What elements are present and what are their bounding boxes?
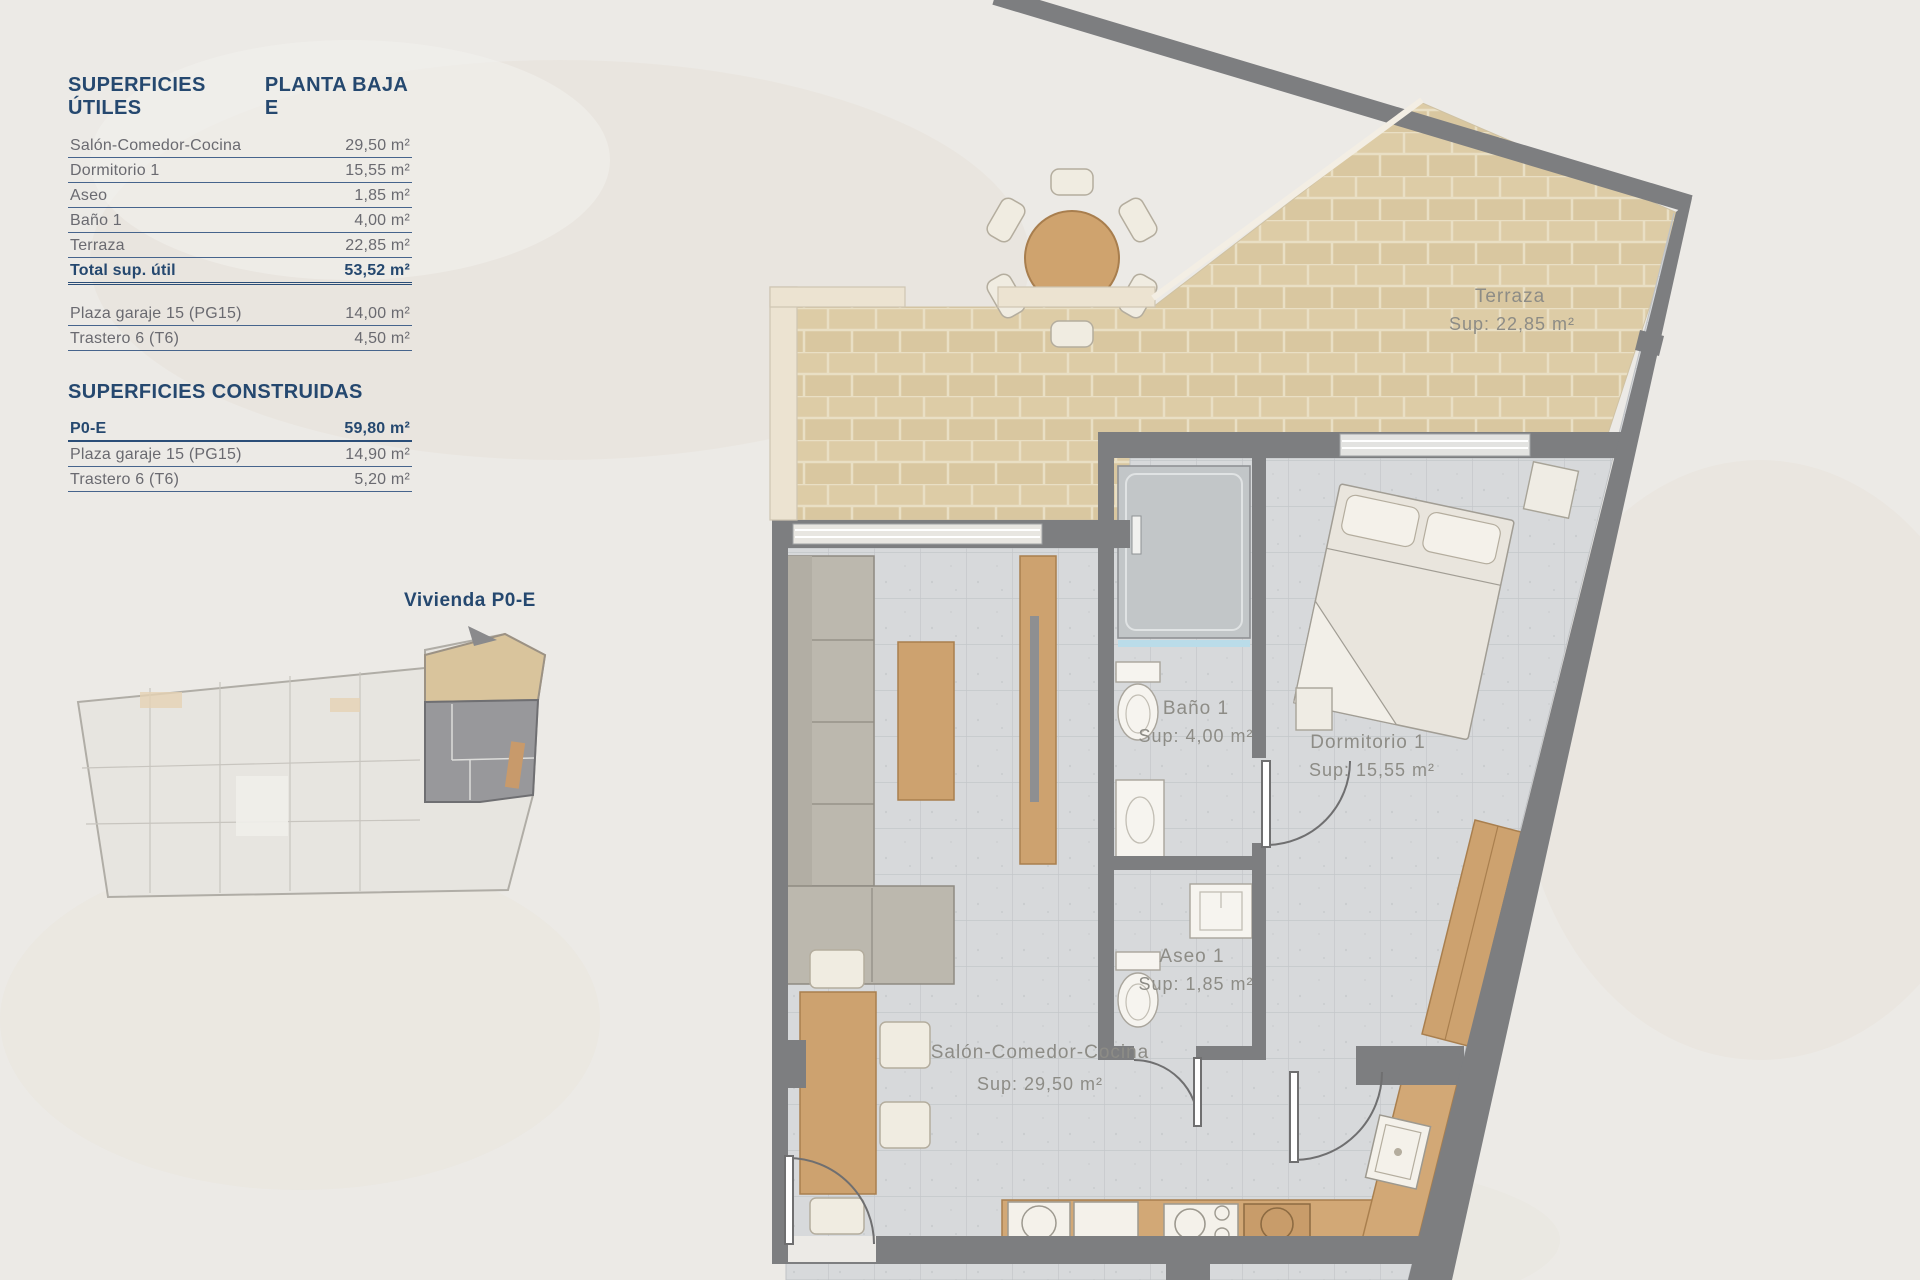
table-row: P0-E59,80 m²: [68, 416, 412, 442]
wall: [1112, 856, 1252, 870]
door-leaf: [1194, 1058, 1201, 1126]
room-sup-salon: Sup: 29,50 m²: [977, 1074, 1103, 1094]
total-value: 53,52 m²: [344, 262, 410, 280]
row-value: 1,85 m²: [354, 187, 410, 205]
dining-chair: [810, 950, 864, 988]
dining-table: [800, 992, 876, 1194]
dining-chair: [810, 1198, 864, 1234]
total-label: Total sup. útil: [70, 262, 176, 280]
row-label: Plaza garaje 15 (PG15): [70, 305, 242, 323]
coffee-table: [898, 642, 954, 800]
row-value: 29,50 m²: [345, 137, 410, 155]
room-label-dormitorio: Dormitorio 1: [1310, 732, 1425, 753]
panel-title-floor: PLANTA BAJA E: [265, 74, 412, 120]
table-row: Plaza garaje 15 (PG15)14,00 m²: [68, 301, 412, 326]
room-label-salon: Salón-Comedor-Cocina: [931, 1042, 1150, 1063]
row-value: 5,20 m²: [354, 471, 410, 489]
wall: [1252, 843, 1266, 1060]
extra-surfaces-table: Plaza garaje 15 (PG15)14,00 m²Trastero 6…: [68, 301, 412, 351]
room-sup-bano: Sup: 4,00 m²: [1138, 726, 1253, 746]
bedside-table: [1296, 688, 1332, 730]
door-leaf: [785, 1156, 793, 1244]
table-row: Trastero 6 (T6)5,20 m²: [68, 467, 412, 492]
room-label-terraza: Terraza: [1475, 286, 1545, 307]
toilet-tank: [1116, 952, 1160, 970]
row-value: 4,50 m²: [354, 330, 410, 348]
table-row: Dormitorio 115,55 m²: [68, 158, 412, 183]
terrace-chair: [1051, 321, 1093, 347]
useful-surfaces-table: Salón-Comedor-Cocina29,50 m²Dormitorio 1…: [68, 133, 412, 258]
table-row: Baño 14,00 m²: [68, 208, 412, 233]
sofa-back: [786, 556, 812, 886]
built-surfaces-table: P0-E59,80 m²Plaza garaje 15 (PG15)14,90 …: [68, 416, 412, 492]
room-label-aseo: Aseo 1: [1159, 946, 1224, 967]
room-sup-aseo: Sup: 1,85 m²: [1138, 974, 1253, 994]
table-row: Terraza22,85 m²: [68, 233, 412, 258]
row-label: Dormitorio 1: [70, 162, 160, 180]
keyplan-stairs: [236, 776, 288, 836]
door-leaf: [1262, 761, 1270, 847]
table-row: Aseo1,85 m²: [68, 183, 412, 208]
table-row: Salón-Comedor-Cocina29,50 m²: [68, 133, 412, 158]
toilet-tank: [1116, 662, 1160, 682]
door-leaf: [1290, 1072, 1298, 1162]
row-label: Trastero 6 (T6): [70, 471, 179, 489]
shower-handle: [1132, 516, 1141, 554]
dining-chair: [880, 1102, 930, 1148]
wall-stub: [1166, 1262, 1210, 1280]
room-label-bano: Baño 1: [1163, 698, 1229, 719]
room-sup-dormitorio: Sup: 15,55 m²: [1309, 760, 1435, 780]
row-label: P0-E: [70, 420, 106, 438]
row-value: 15,55 m²: [345, 162, 410, 180]
wall: [1252, 458, 1266, 758]
table-row-total: Total sup. útil 53,52 m²: [68, 258, 412, 285]
shower-glass: [1118, 640, 1250, 647]
built-surfaces-title: SUPERFICIES CONSTRUIDAS: [68, 381, 412, 404]
row-value: 14,90 m²: [345, 446, 410, 464]
row-label: Salón-Comedor-Cocina: [70, 137, 241, 155]
surfaces-panel: SUPERFICIES ÚTILES PLANTA BAJA E Salón-C…: [68, 74, 412, 492]
sink: [1116, 780, 1164, 860]
railing: [770, 287, 905, 307]
bedside-table: [1524, 462, 1579, 519]
keyplan-unit-terrace: [425, 634, 545, 702]
wall: [1356, 1046, 1464, 1085]
row-label: Baño 1: [70, 212, 122, 230]
tv-icon: [1030, 616, 1039, 802]
wall: [1098, 432, 1114, 1060]
dining-chair: [880, 1022, 930, 1068]
row-label: Aseo: [70, 187, 107, 205]
terrace-chair: [1116, 195, 1160, 244]
living-window: [793, 524, 1042, 544]
terrace-chair: [1051, 169, 1093, 195]
keyplan-title: Vivienda P0-E: [404, 590, 536, 612]
table-row: Plaza garaje 15 (PG15)14,90 m²: [68, 442, 412, 467]
wall: [772, 516, 788, 1264]
keyplan-patio: [140, 692, 182, 708]
railing: [998, 287, 1155, 307]
table-row: Trastero 6 (T6)4,50 m²: [68, 326, 412, 351]
page: { "panel": { "title_left": "SUPERFICIES …: [0, 0, 1920, 1280]
row-label: Plaza garaje 15 (PG15): [70, 446, 242, 464]
keyplan-patio: [330, 698, 360, 712]
row-value: 14,00 m²: [345, 305, 410, 323]
row-label: Trastero 6 (T6): [70, 330, 179, 348]
panel-header: SUPERFICIES ÚTILES PLANTA BAJA E: [68, 74, 412, 120]
row-value: 22,85 m²: [345, 237, 410, 255]
room-sup-terraza: Sup: 22,85 m²: [1449, 314, 1575, 334]
row-label: Terraza: [70, 237, 125, 255]
row-value: 4,00 m²: [354, 212, 410, 230]
row-value: 59,80 m²: [344, 420, 410, 438]
wall-pillar: [788, 1040, 806, 1088]
wall: [1196, 1046, 1266, 1060]
panel-title-useful: SUPERFICIES ÚTILES: [68, 74, 265, 120]
railing: [770, 287, 797, 520]
bedroom-window: [1340, 434, 1530, 456]
keyplan: [78, 626, 545, 897]
